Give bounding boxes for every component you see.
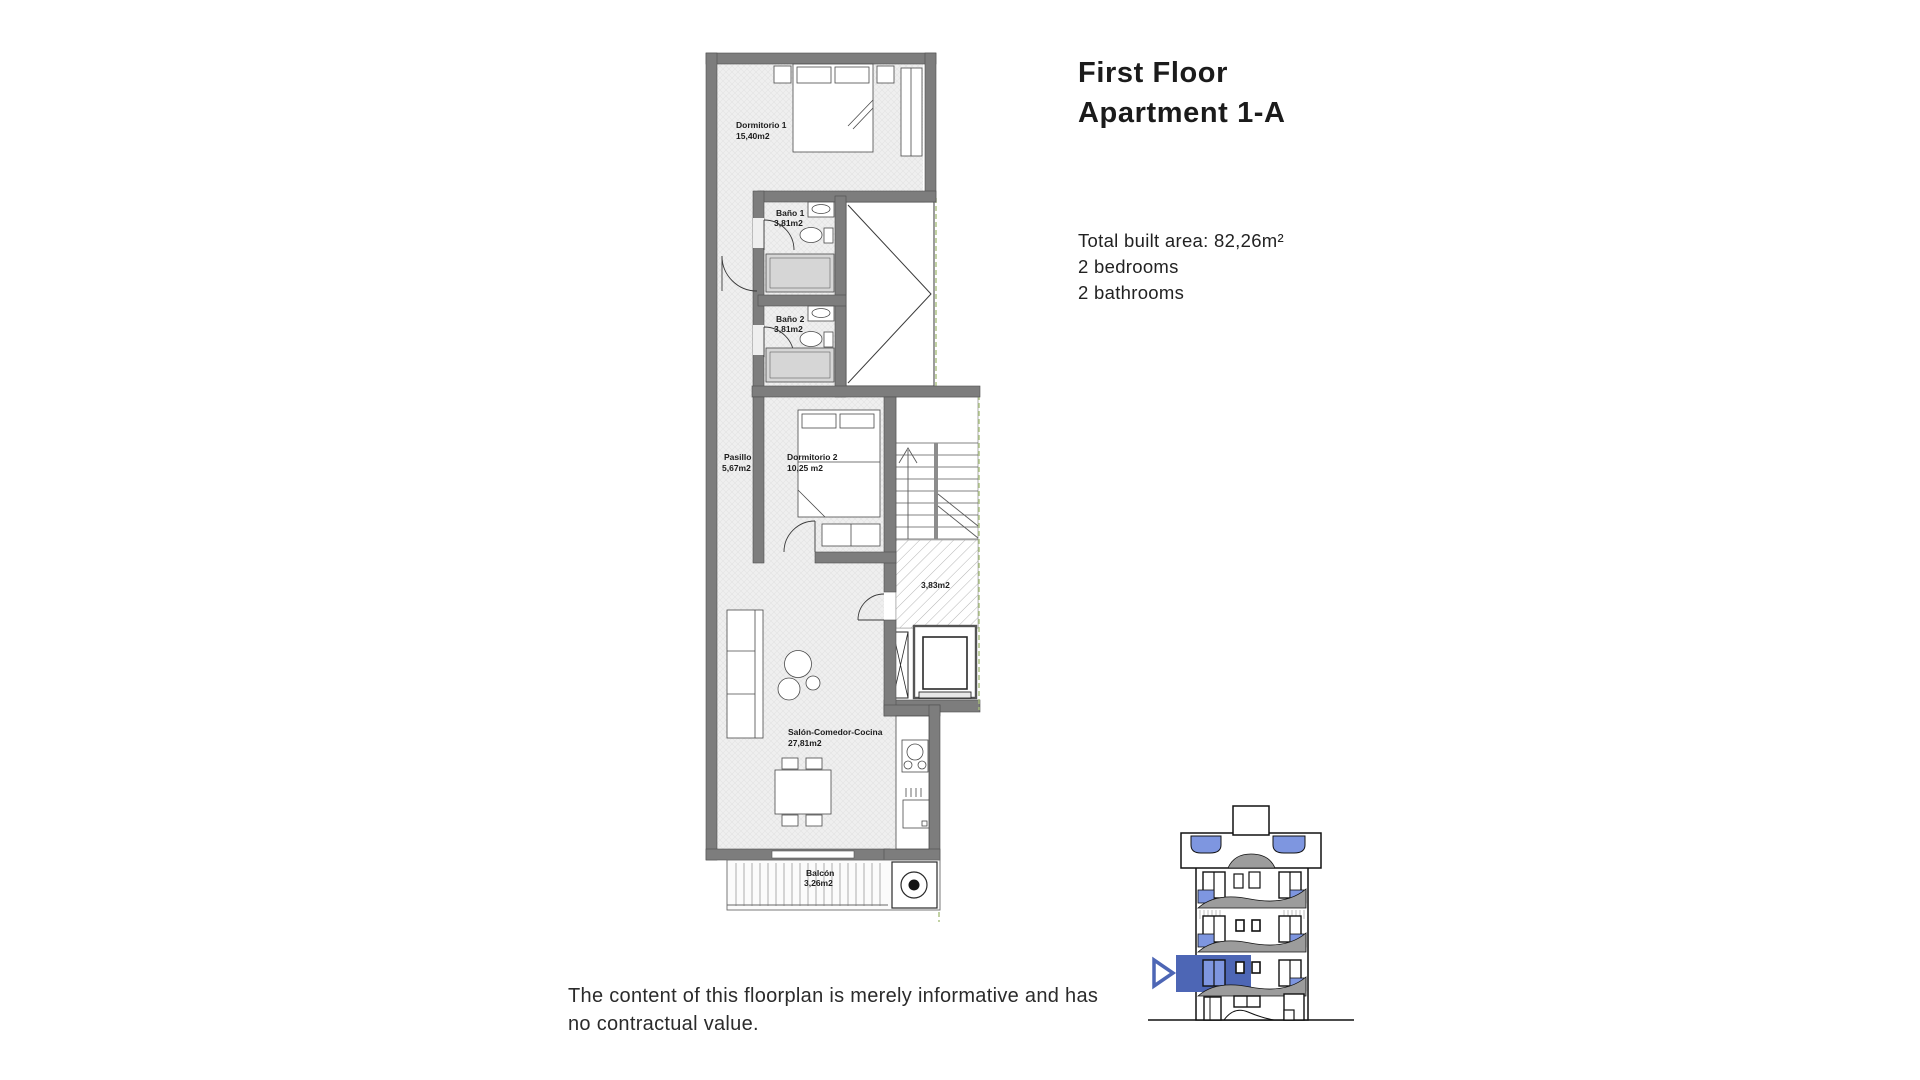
label-salon: Salón-Comedor-Cocina: [788, 727, 883, 737]
label-dormitorio1: Dormitorio 1: [736, 120, 787, 130]
label-dormitorio2: Dormitorio 2: [787, 452, 838, 462]
label-dormitorio1-area: 15,40m2: [736, 131, 770, 141]
label-pasillo-area: 5,67m2: [722, 463, 751, 473]
void-shaft: [846, 202, 934, 386]
label-landing-area: 3,83m2: [921, 580, 950, 590]
stairwell: [884, 397, 980, 712]
label-bano2: Baño 2: [776, 314, 805, 324]
label-pasillo: Pasillo: [724, 452, 751, 462]
bathrooms-count: 2 bathrooms: [1078, 280, 1284, 306]
disclaimer-text: The content of this floorplan is merely …: [568, 982, 1100, 1038]
label-dormitorio2-area: 10,25 m2: [787, 463, 823, 473]
first-floor-highlight: [1176, 955, 1306, 996]
title-line2: Apartment 1-A: [1078, 97, 1286, 129]
label-balcon-area: 3,26m2: [804, 878, 833, 888]
total-area: Total built area: 82,26m²: [1078, 228, 1284, 254]
label-balcon: Balcón: [806, 868, 834, 878]
label-bano2-area: 3,81m2: [774, 324, 803, 334]
apartment-summary: Total built area: 82,26m² 2 bedrooms 2 b…: [1078, 228, 1284, 306]
label-bano1-area: 3,81m2: [774, 218, 803, 228]
bedrooms-count: 2 bedrooms: [1078, 254, 1284, 280]
building-elevation: [1146, 798, 1358, 1030]
label-salon-area: 27,81m2: [788, 738, 822, 748]
page-title: First Floor Apartment 1-A: [1078, 53, 1286, 133]
label-bano1: Baño 1: [776, 208, 805, 218]
header-block: First Floor Apartment 1-A: [1078, 53, 1286, 133]
floorplan-page: Dormitorio 1 15,40m2 Baño 1 3,81m2 Baño …: [0, 0, 1920, 1080]
location-arrow-icon: [1154, 960, 1173, 986]
floorplan-drawing: Dormitorio 1 15,40m2 Baño 1 3,81m2 Baño …: [690, 40, 1010, 940]
title-line1: First Floor: [1078, 57, 1228, 89]
